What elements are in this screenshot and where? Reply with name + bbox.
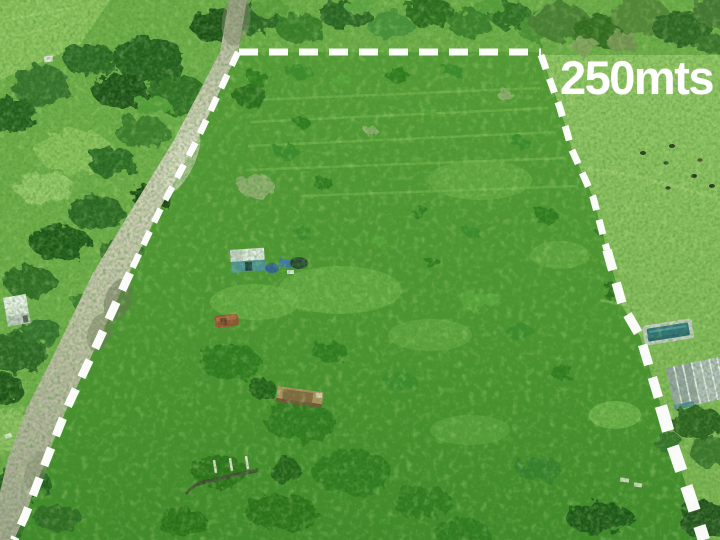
- distance-label: 250mts: [560, 54, 713, 101]
- aerial-photo: 250mts: [0, 0, 720, 540]
